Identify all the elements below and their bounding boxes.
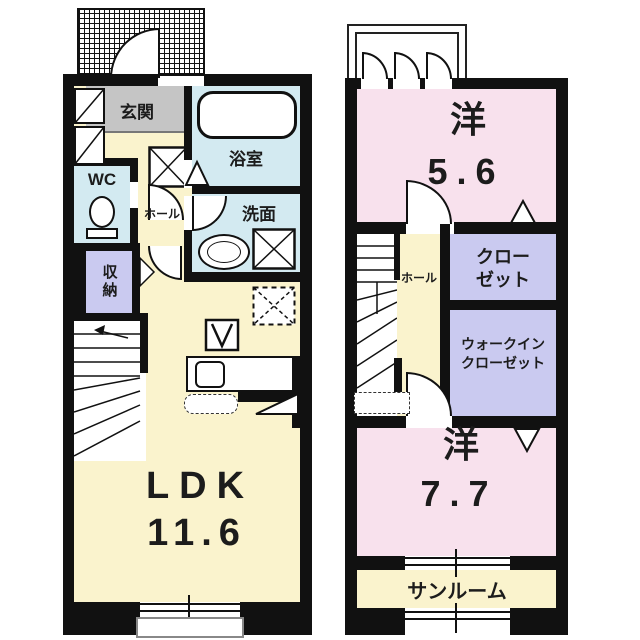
wall (130, 166, 138, 182)
window-line (405, 564, 510, 566)
kitchen-counter-sink (195, 361, 225, 388)
closet-label-line1: クロー (450, 244, 556, 267)
balcony-window-base (393, 78, 420, 89)
window-line (140, 603, 240, 605)
window-line (405, 611, 510, 613)
wall (63, 74, 158, 86)
stairwell-opening (354, 392, 410, 414)
kitchen-sink-symbol (204, 318, 240, 352)
room-7-7-label: 洋 (431, 420, 491, 464)
window-line (140, 610, 240, 612)
kitchen-corner-cabinet (254, 392, 300, 416)
wall (345, 78, 357, 635)
storage-label: 収納 (88, 253, 130, 311)
floorplan-canvas: 玄関 浴室 洗面 WC 収納 (0, 0, 640, 640)
wall (510, 608, 568, 635)
wall (192, 186, 312, 194)
stairs-2f-steps (357, 234, 397, 392)
balcony-window-base (425, 78, 452, 89)
room-5-6-size: 5.6 (406, 150, 526, 194)
wall (204, 74, 312, 86)
wall (556, 78, 568, 635)
window-center-tick (455, 549, 457, 577)
kitchen-counter-front (184, 394, 238, 414)
stairs-1f-steps (74, 321, 146, 461)
wall (394, 358, 402, 392)
bathtub (197, 91, 297, 139)
shoe-cabinet (74, 88, 106, 166)
hall-label-1f: ホール (134, 204, 190, 222)
wall (184, 272, 312, 282)
closet-label-line2: ゼット (450, 267, 556, 290)
wc-label: WC (76, 170, 128, 190)
hall-storage-box (148, 146, 188, 188)
refrigerator-box (252, 286, 296, 326)
wall (74, 243, 140, 251)
wall (345, 608, 405, 635)
wall (63, 74, 74, 635)
wall (345, 416, 406, 428)
washroom-label: 洗面 (224, 202, 294, 222)
wall (63, 602, 140, 635)
wall (140, 321, 148, 373)
room-5-6-label: 洋 (438, 95, 498, 139)
wall (450, 300, 556, 310)
wall (184, 86, 192, 160)
wall (345, 556, 405, 570)
walkin-closet-door-mark (512, 426, 542, 454)
ldk-room-label: LDK (120, 463, 280, 509)
storage-folding-door-mark (138, 254, 158, 290)
washing-machine-box (252, 228, 296, 270)
room-7-7-size: 7.7 (399, 472, 519, 516)
washbasin-sink-inner (207, 241, 241, 263)
bath-folding-door-mark (184, 158, 210, 188)
terrace-step (136, 617, 244, 638)
walkin-closet-label-line2: クローゼット (450, 353, 556, 372)
walkin-closet-label-line1: ウォークイン (450, 334, 556, 353)
wall (300, 74, 312, 635)
closet-door-mark (508, 198, 538, 226)
toilet-tank (86, 228, 118, 239)
window-center-tick (455, 603, 457, 633)
toilet-bowl (89, 196, 115, 228)
wall (240, 602, 312, 635)
wall (510, 556, 568, 570)
wall (345, 222, 406, 234)
wall (74, 251, 86, 313)
sunroom-label: サンルーム (377, 575, 537, 603)
window-line (405, 618, 510, 620)
window-line (405, 557, 510, 559)
wall (74, 313, 148, 321)
ldk-size-label: 11.6 (112, 510, 282, 556)
hall-label-2f: ホール (395, 268, 443, 286)
balcony-window-base (361, 78, 388, 89)
